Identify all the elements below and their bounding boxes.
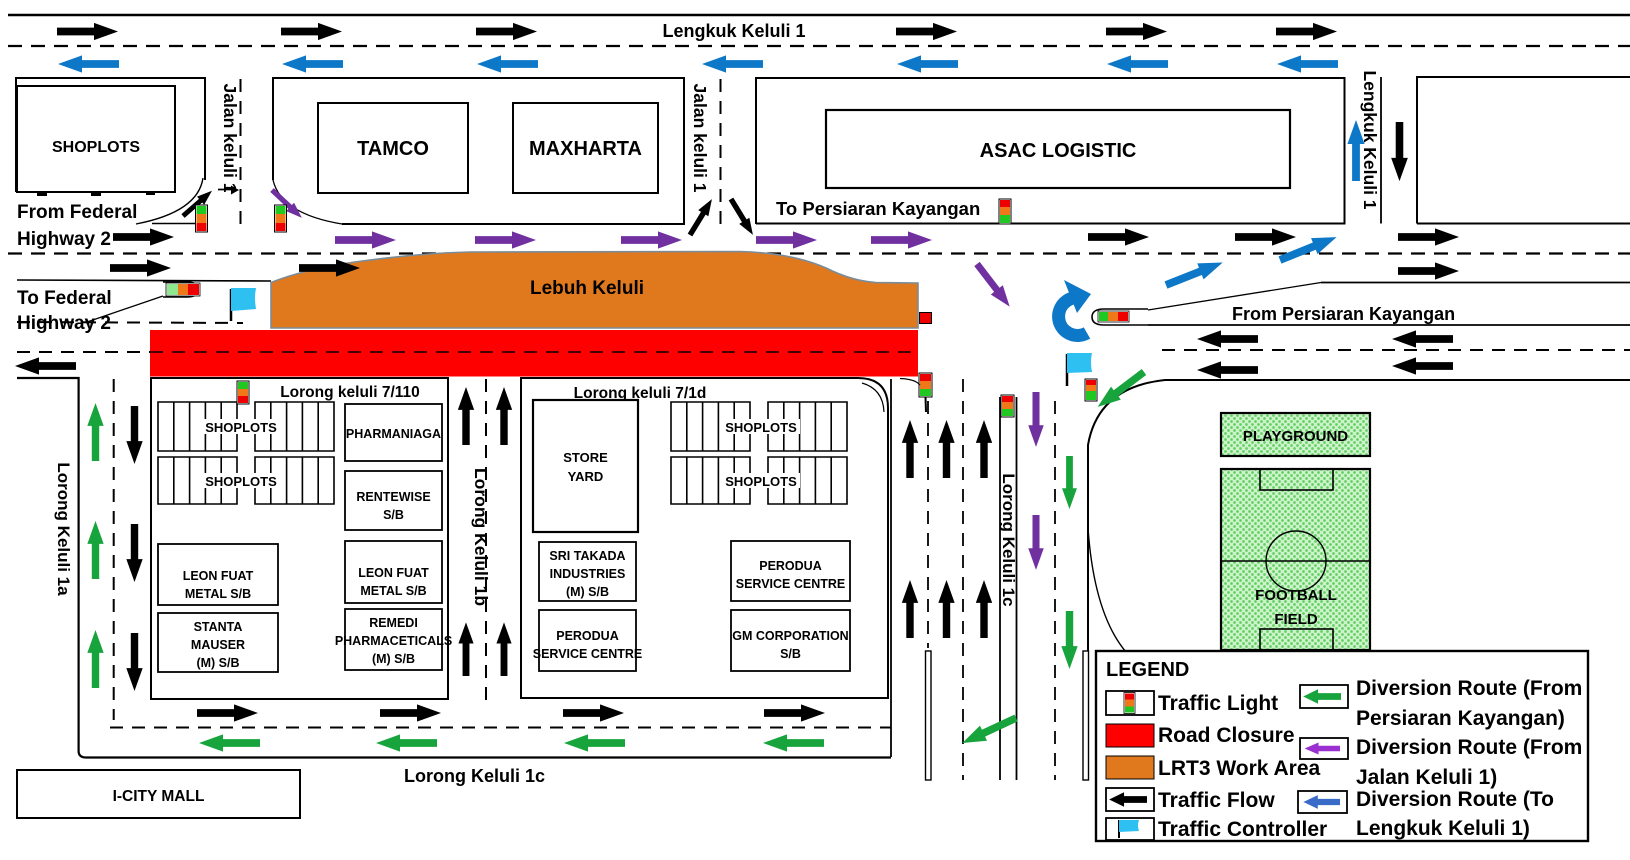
svg-text:PLAYGROUND: PLAYGROUND xyxy=(1243,428,1348,445)
svg-text:(M) S/B: (M) S/B xyxy=(372,652,415,666)
svg-text:Lebuh Keluli: Lebuh Keluli xyxy=(530,278,644,299)
svg-text:Lengkuk Keluli 1: Lengkuk Keluli 1 xyxy=(662,21,805,41)
svg-text:INDUSTRIES: INDUSTRIES xyxy=(550,567,626,581)
svg-text:(M) S/B: (M) S/B xyxy=(196,656,239,670)
svg-text:LEGEND: LEGEND xyxy=(1106,659,1189,681)
svg-text:SHOPLOTS: SHOPLOTS xyxy=(725,420,797,435)
svg-text:STORE: STORE xyxy=(563,450,608,465)
svg-text:Lorong keluli 7/110: Lorong keluli 7/110 xyxy=(280,384,420,401)
svg-text:To Federal: To Federal xyxy=(17,288,112,309)
svg-text:(M) S/B: (M) S/B xyxy=(566,585,609,599)
svg-text:LEON FUAT: LEON FUAT xyxy=(183,569,254,583)
svg-text:Diversion Route (From: Diversion Route (From xyxy=(1356,736,1582,759)
svg-text:From Persiaran Kayangan: From Persiaran Kayangan xyxy=(1232,304,1455,324)
svg-text:MAXHARTA: MAXHARTA xyxy=(529,138,642,160)
svg-text:From Federal: From Federal xyxy=(17,202,137,223)
svg-text:SHOPLOTS: SHOPLOTS xyxy=(725,474,797,489)
svg-text:S/B: S/B xyxy=(383,508,404,522)
svg-text:S/B: S/B xyxy=(780,647,801,661)
svg-text:YARD: YARD xyxy=(568,469,604,484)
svg-text:Traffic Light: Traffic Light xyxy=(1158,692,1278,715)
svg-text:Highway 2: Highway 2 xyxy=(17,313,111,334)
svg-text:PERODUA: PERODUA xyxy=(759,559,822,573)
svg-text:PHARMACETICALS: PHARMACETICALS xyxy=(335,634,452,648)
svg-text:SERVICE CENTRE: SERVICE CENTRE xyxy=(533,647,643,661)
svg-text:SRI TAKADA: SRI TAKADA xyxy=(549,549,625,563)
svg-text:Lengkuk Keluli 1): Lengkuk Keluli 1) xyxy=(1356,817,1530,840)
svg-text:LEON FUAT: LEON FUAT xyxy=(358,566,429,580)
svg-text:METAL S/B: METAL S/B xyxy=(185,587,251,601)
svg-text:Lorong Keluli 1c: Lorong Keluli 1c xyxy=(404,766,545,786)
svg-text:Diversion Route (To: Diversion Route (To xyxy=(1356,788,1554,811)
svg-text:FIELD: FIELD xyxy=(1274,611,1317,628)
svg-text:Traffic Controller: Traffic Controller xyxy=(1158,818,1327,841)
svg-text:TAMCO: TAMCO xyxy=(357,138,429,160)
svg-text:PERODUA: PERODUA xyxy=(556,629,619,643)
svg-text:Lorong Keluli 1a: Lorong Keluli 1a xyxy=(54,462,73,596)
svg-text:LRT3 Work Area: LRT3 Work Area xyxy=(1158,757,1321,780)
svg-text:Lorong Keluli 1c: Lorong Keluli 1c xyxy=(999,473,1018,606)
svg-text:Jalan keluli 1: Jalan keluli 1 xyxy=(690,84,710,193)
svg-text:STANTA: STANTA xyxy=(194,620,243,634)
svg-text:MAUSER: MAUSER xyxy=(191,638,245,652)
svg-text:SERVICE CENTRE: SERVICE CENTRE xyxy=(736,577,846,591)
svg-text:Traffic Flow: Traffic Flow xyxy=(1158,789,1275,812)
svg-text:ASAC LOGISTIC: ASAC LOGISTIC xyxy=(980,140,1137,162)
svg-text:METAL S/B: METAL S/B xyxy=(360,584,426,598)
svg-text:PHARMANIAGA: PHARMANIAGA xyxy=(346,427,441,441)
svg-text:RENTEWISE: RENTEWISE xyxy=(356,490,430,504)
svg-text:Diversion Route (From: Diversion Route (From xyxy=(1356,677,1582,700)
svg-text:SHOPLOTS: SHOPLOTS xyxy=(52,139,140,156)
svg-text:GM CORPORATION: GM CORPORATION xyxy=(732,629,848,643)
svg-text:Jalan keluli 1: Jalan keluli 1 xyxy=(220,84,240,193)
svg-text:SHOPLOTS: SHOPLOTS xyxy=(205,420,277,435)
svg-text:Highway 2: Highway 2 xyxy=(17,229,111,250)
svg-text:FOOTBALL: FOOTBALL xyxy=(1255,587,1337,604)
svg-text:SHOPLOTS: SHOPLOTS xyxy=(205,474,277,489)
svg-text:REMEDI: REMEDI xyxy=(369,616,418,630)
svg-text:Road Closure: Road Closure xyxy=(1158,724,1295,747)
svg-text:Lorong Keluli 1b: Lorong Keluli 1b xyxy=(471,468,491,606)
svg-text:Persiaran Kayangan): Persiaran Kayangan) xyxy=(1356,707,1565,730)
svg-text:To Persiaran Kayangan: To Persiaran Kayangan xyxy=(776,198,980,219)
svg-text:I-CITY MALL: I-CITY MALL xyxy=(113,788,205,805)
svg-text:Jalan Keluli 1): Jalan Keluli 1) xyxy=(1356,766,1497,789)
